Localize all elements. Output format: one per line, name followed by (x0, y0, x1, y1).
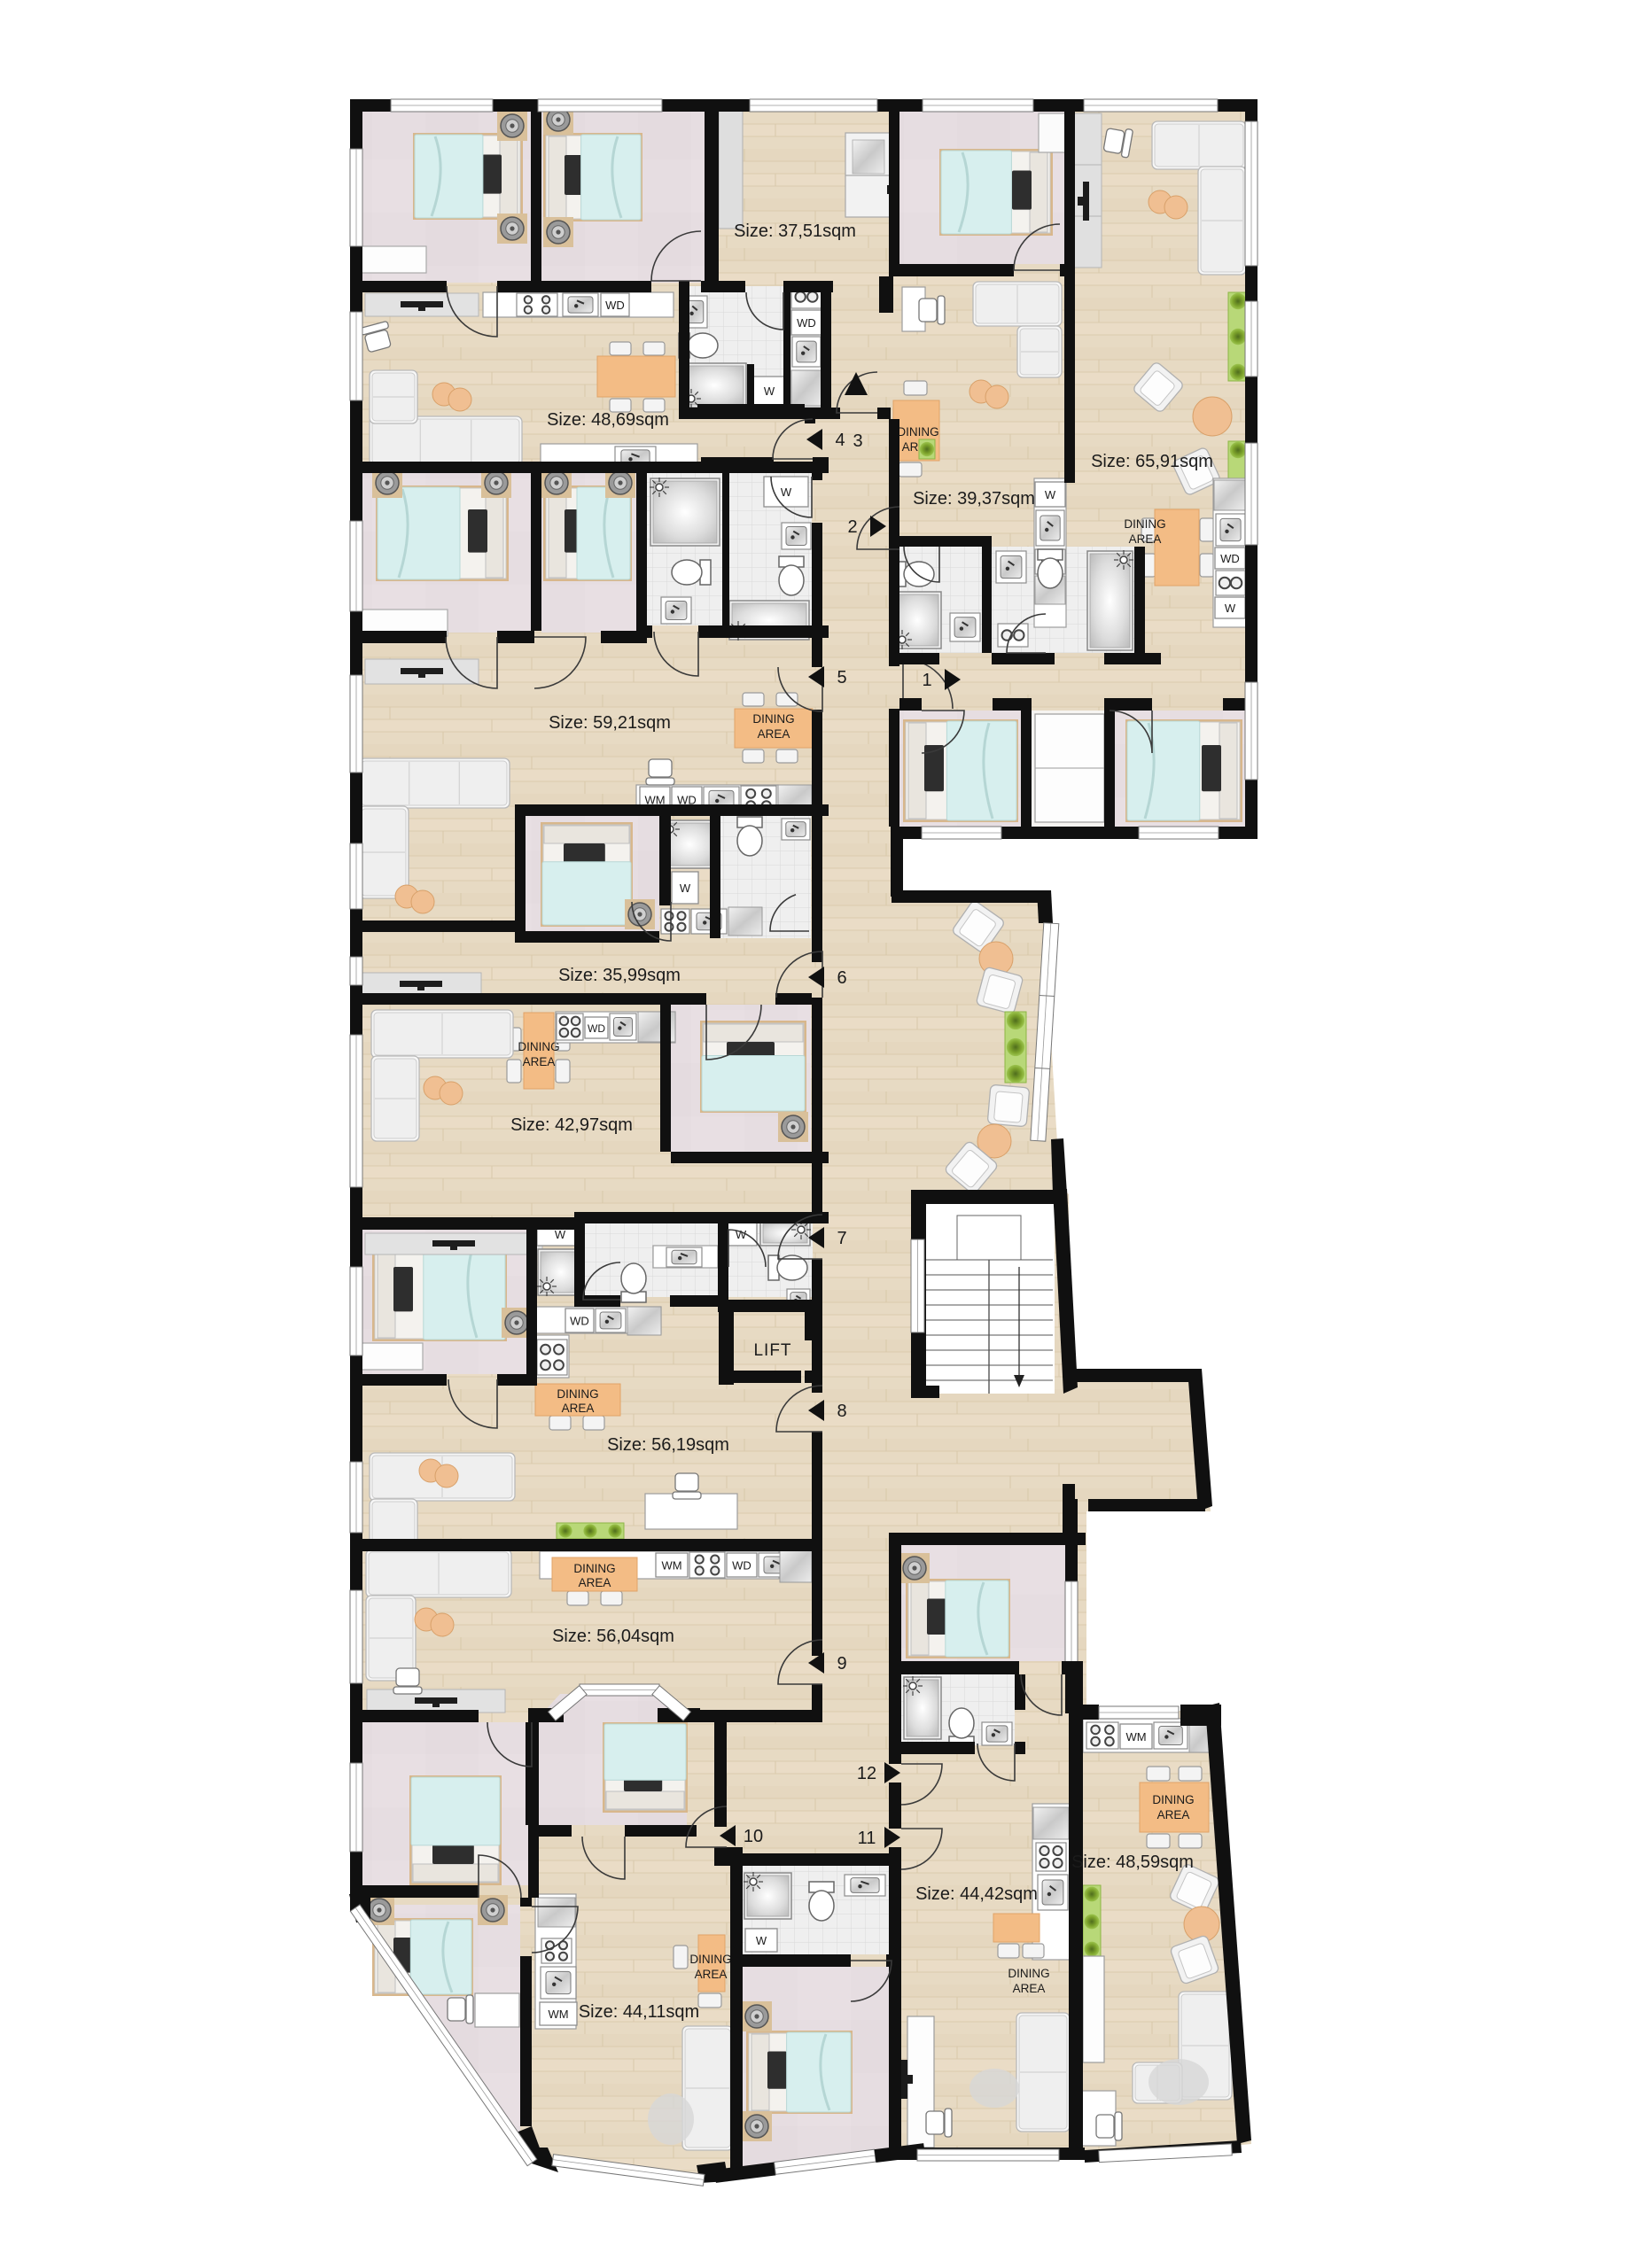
svg-text:AREA: AREA (695, 1968, 728, 1981)
svg-text:2: 2 (847, 517, 857, 537)
svg-text:W: W (1225, 602, 1236, 615)
svg-text:WM: WM (1125, 1730, 1146, 1744)
svg-text:AREA: AREA (1013, 1982, 1046, 1995)
svg-text:AREA: AREA (523, 1055, 556, 1068)
svg-text:1: 1 (922, 671, 931, 690)
svg-text:AREA: AREA (562, 1402, 595, 1415)
svg-text:WD: WD (605, 299, 625, 312)
svg-text:AREA: AREA (579, 1576, 611, 1589)
svg-text:AREA: AREA (1157, 1808, 1190, 1821)
svg-text:DINING: DINING (689, 1953, 731, 1966)
svg-text:WD: WD (732, 1559, 751, 1573)
svg-text:DINING: DINING (1008, 1967, 1049, 1980)
svg-text:Size: 37,51sqm: Size: 37,51sqm (734, 221, 856, 241)
svg-text:DINING: DINING (573, 1562, 615, 1575)
svg-text:4: 4 (835, 431, 845, 450)
svg-text:DINING: DINING (897, 425, 938, 439)
svg-text:3: 3 (853, 431, 862, 451)
svg-text:DINING: DINING (557, 1387, 598, 1401)
svg-text:WM: WM (661, 1559, 681, 1573)
svg-text:8: 8 (837, 1402, 846, 1421)
svg-text:Size: 48,69sqm: Size: 48,69sqm (547, 410, 669, 430)
svg-text:DINING: DINING (1152, 1793, 1194, 1806)
svg-text:Size: 65,91sqm: Size: 65,91sqm (1091, 452, 1213, 471)
svg-text:W: W (555, 1228, 566, 1241)
svg-text:Size: 44,11sqm: Size: 44,11sqm (579, 2002, 699, 2022)
svg-text:DINING: DINING (752, 712, 794, 726)
svg-text:10: 10 (744, 1827, 763, 1846)
svg-text:LIFT: LIFT (753, 1341, 791, 1360)
svg-text:W: W (680, 882, 691, 895)
svg-text:WD: WD (797, 316, 816, 330)
svg-text:Size: 44,42sqm: Size: 44,42sqm (915, 1884, 1038, 1904)
svg-text:DINING: DINING (1124, 517, 1165, 531)
svg-text:Size: 56,19sqm: Size: 56,19sqm (607, 1435, 729, 1455)
svg-text:W: W (756, 1934, 767, 1947)
svg-text:DINING: DINING (518, 1040, 559, 1053)
svg-text:11: 11 (858, 1829, 876, 1848)
svg-text:WM: WM (548, 2008, 568, 2021)
svg-text:W: W (1045, 488, 1056, 501)
svg-text:WD: WD (1220, 552, 1240, 565)
svg-text:Size: 35,99sqm: Size: 35,99sqm (558, 966, 681, 985)
svg-text:WD: WD (588, 1022, 605, 1035)
svg-text:12: 12 (857, 1764, 876, 1783)
svg-text:AREA: AREA (1129, 532, 1162, 546)
svg-text:WD: WD (570, 1315, 589, 1328)
svg-text:W: W (781, 485, 792, 499)
svg-text:AREA: AREA (758, 727, 790, 741)
svg-text:9: 9 (837, 1654, 846, 1674)
svg-text:Size: 39,37sqm: Size: 39,37sqm (913, 489, 1035, 509)
svg-text:Size: 42,97sqm: Size: 42,97sqm (510, 1115, 633, 1135)
svg-text:W: W (764, 384, 775, 398)
svg-text:5: 5 (837, 668, 846, 687)
svg-text:Size: 59,21sqm: Size: 59,21sqm (549, 713, 671, 733)
svg-text:6: 6 (837, 968, 846, 988)
svg-text:Size: 56,04sqm: Size: 56,04sqm (552, 1627, 674, 1646)
svg-text:Size: 48,59sqm: Size: 48,59sqm (1071, 1852, 1194, 1872)
svg-text:7: 7 (837, 1229, 846, 1248)
